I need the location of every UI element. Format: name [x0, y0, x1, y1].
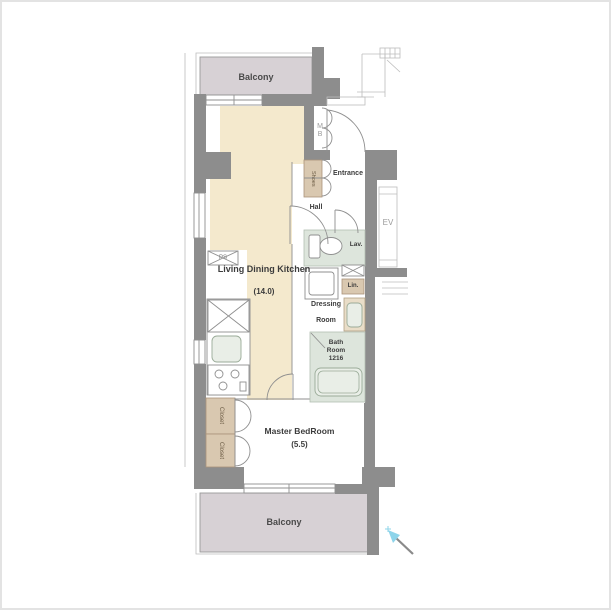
- lavatory-label: Lav.: [346, 241, 366, 248]
- hall-label: Hall: [302, 204, 330, 212]
- pipe-space-label: PS: [208, 251, 238, 265]
- elevator-label: EV: [379, 218, 397, 227]
- closet-label-2: Closet: [206, 434, 235, 467]
- north-arrow-icon: [385, 526, 413, 554]
- kitchen-sink: [212, 336, 241, 362]
- balcony-bottom-label: Balcony: [200, 493, 368, 552]
- balcony-top-label: Balcony: [200, 57, 312, 97]
- stove: [208, 365, 249, 395]
- ldk-label: Living Dining Kitchen: [212, 264, 316, 274]
- ldk-size-label: (14.0): [212, 287, 316, 296]
- linen-label: Lin.: [342, 279, 364, 294]
- bathroom-label-3: 1216: [316, 355, 356, 362]
- closet-label-1: Closet: [206, 398, 235, 434]
- master-bedroom-size: (5.5): [252, 440, 347, 449]
- meter-box-label: MB: [313, 112, 326, 150]
- master-bedroom-label: Master BedRoom: [252, 427, 347, 437]
- bathtub: [315, 368, 362, 396]
- pipe-space-box-lav: [342, 265, 364, 276]
- floorplan-image: Balcony Living Dining Kitchen (14.0) Ent…: [0, 0, 611, 610]
- shoe-cabinet-label: Shoes: [304, 160, 322, 197]
- entrance-label: Entrance: [326, 170, 370, 178]
- bathroom-label-2: Room: [316, 347, 356, 354]
- dressing-room-label-1: Dressing: [302, 301, 350, 309]
- bathroom-label-1: Bath: [316, 339, 356, 346]
- dressing-room-label-2: Room: [302, 317, 350, 325]
- kitchen-counter: [207, 299, 250, 395]
